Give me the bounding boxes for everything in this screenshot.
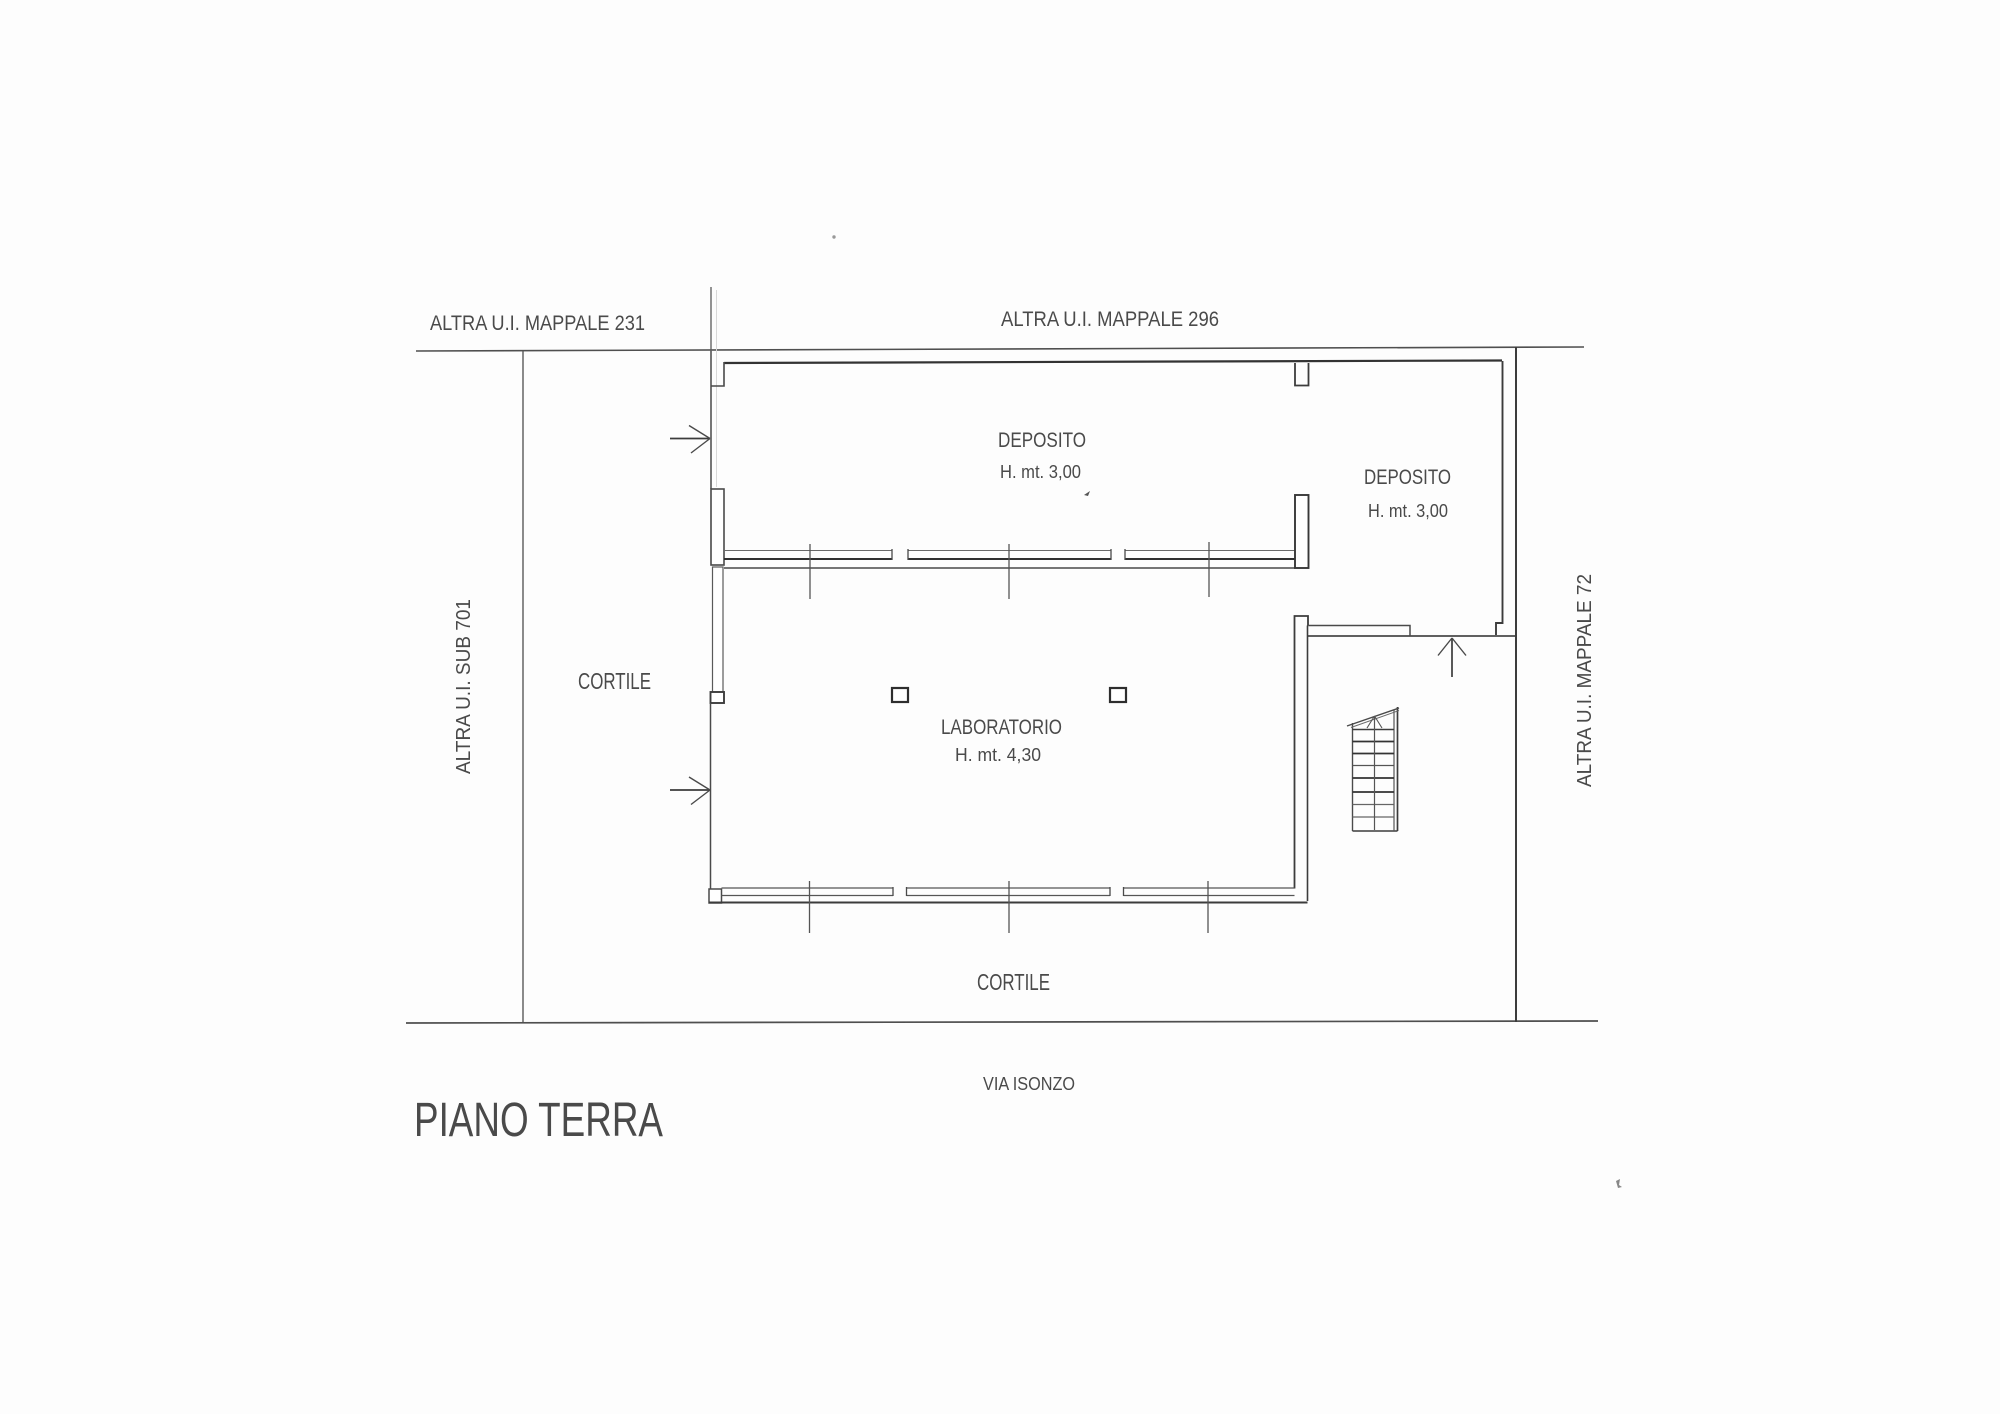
svg-text:DEPOSITO: DEPOSITO [998,428,1086,452]
svg-text:LABORATORIO: LABORATORIO [941,715,1062,739]
svg-text:VIA ISONZO: VIA ISONZO [983,1074,1075,1094]
svg-text:PIANO TERRA: PIANO TERRA [414,1094,663,1147]
svg-text:H. mt. 3,00: H. mt. 3,00 [1368,501,1448,521]
svg-text:H. mt. 3,00: H. mt. 3,00 [1000,462,1081,482]
svg-text:CORTILE: CORTILE [977,969,1050,995]
svg-text:ALTRA U.I. MAPPALE 72: ALTRA U.I. MAPPALE 72 [1573,574,1596,787]
svg-text:DEPOSITO: DEPOSITO [1364,465,1451,489]
svg-text:ALTRA U.I. MAPPALE 231: ALTRA U.I. MAPPALE 231 [430,311,645,335]
svg-text:ALTRA U.I. SUB 701: ALTRA U.I. SUB 701 [452,599,475,774]
svg-text:CORTILE: CORTILE [578,668,651,694]
svg-text:H. mt. 4,30: H. mt. 4,30 [955,745,1041,765]
svg-text:ALTRA U.I. MAPPALE 296: ALTRA U.I. MAPPALE 296 [1001,307,1219,331]
